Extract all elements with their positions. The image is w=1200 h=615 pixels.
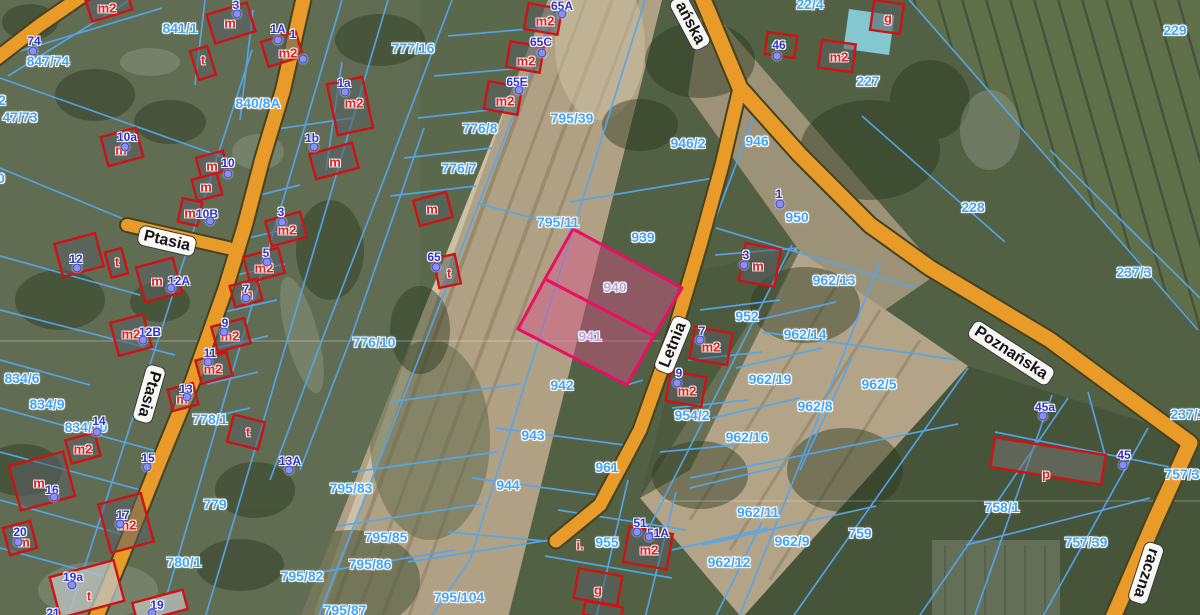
parcel-number-label: 228	[961, 199, 984, 215]
parcel-number-label: 942	[550, 377, 573, 393]
cadastral-map-canvas[interactable]: 841/1847/7447/7320840/8A777/16776/8776/7…	[0, 0, 1200, 615]
address-point-dot	[224, 170, 233, 179]
parcel-number-label: 834/6	[4, 370, 39, 386]
parcel-number-label: 2	[0, 92, 6, 108]
address-point-dot	[299, 55, 308, 64]
address-number-label: 10a	[117, 130, 137, 144]
map-labels-layer: 841/1847/7447/7320840/8A777/16776/8776/7…	[0, 0, 1200, 615]
parcel-number-label: 237/1	[1170, 406, 1200, 422]
building-type-letter: m2	[536, 14, 555, 29]
street-name-label: raczna	[1126, 540, 1166, 606]
parcel-number-label: 962/13	[813, 272, 856, 288]
parcel-number-label: 776/8	[462, 120, 497, 136]
address-point-dot	[558, 10, 567, 19]
building-type-letter: t	[447, 266, 451, 281]
parcel-number-label: 757/39	[1065, 534, 1108, 550]
building-type-letter: m	[206, 159, 218, 174]
address-number-label: 1	[290, 27, 297, 41]
address-point-dot	[139, 336, 148, 345]
parcel-number-label: 834/9	[29, 396, 64, 412]
building-type-letter: g	[884, 11, 892, 26]
building-type-letter: m	[151, 274, 163, 289]
building-type-letter: p	[1042, 467, 1050, 482]
parcel-number-label: 795/11	[537, 214, 579, 230]
parcel-number-label: 954/2	[674, 407, 709, 423]
parcel-number-label: 962/19	[749, 371, 792, 387]
building-type-letter: m	[426, 202, 438, 217]
address-point-dot	[93, 428, 102, 437]
parcel-number-label: 795/86	[349, 556, 392, 572]
address-point-dot	[310, 143, 319, 152]
address-point-dot	[73, 264, 82, 273]
address-point-dot	[278, 218, 287, 227]
parcel-number-label: 780/1	[166, 554, 201, 570]
address-point-dot	[29, 47, 38, 56]
address-point-dot	[633, 528, 642, 537]
address-point-dot	[167, 284, 176, 293]
address-point-dot	[773, 52, 782, 61]
address-number-label: 14	[92, 414, 105, 428]
parcel-number-label: 229	[1163, 22, 1186, 38]
building-type-letter: m2	[517, 54, 536, 69]
building-type-letter: m2	[345, 96, 364, 111]
address-point-dot	[515, 86, 524, 95]
parcel-number-label: 227	[856, 73, 879, 89]
parcel-number-label: 795/39	[551, 110, 594, 126]
address-point-dot	[1119, 461, 1128, 470]
parcel-number-label: 759	[848, 525, 871, 541]
building-type-letter: t	[115, 255, 119, 270]
building-type-letter: m	[329, 155, 341, 170]
parcel-number-label: 795/82	[281, 568, 324, 584]
parcel-number-label: 962/8	[797, 398, 832, 414]
street-name-label: Ptasia	[131, 363, 168, 426]
address-number-label: 46	[772, 38, 785, 52]
address-point-dot	[183, 393, 192, 402]
address-point-dot	[740, 261, 749, 270]
parcel-number-label: 795/85	[365, 529, 408, 545]
building-type-letter: m	[33, 476, 45, 491]
parcel-number-label: 0	[0, 170, 5, 186]
address-number-label: 65C	[530, 35, 552, 49]
address-point-dot	[121, 143, 130, 152]
street-name-label: Letnia	[652, 314, 694, 377]
parcel-number-label: 776/10	[353, 334, 396, 350]
parcel-number-label: 950	[785, 209, 808, 225]
parcel-number-label: 962/11	[737, 504, 779, 520]
address-point-dot	[220, 328, 229, 337]
address-number-label: 10	[221, 156, 234, 170]
parcel-number-label: 779	[203, 496, 226, 512]
address-point-dot	[673, 379, 682, 388]
address-point-dot	[143, 463, 152, 472]
building-type-letter: m	[200, 180, 212, 195]
parcel-number-label: 939	[631, 229, 654, 245]
parcel-number-label: 962/12	[708, 554, 751, 570]
street-name-label: Ptasia	[136, 224, 198, 258]
building-type-letter: m2	[830, 50, 849, 65]
parcel-number-label: 757/3	[1164, 466, 1199, 482]
address-point-dot	[233, 10, 242, 19]
address-point-dot	[206, 217, 215, 226]
address-point-dot	[204, 358, 213, 367]
address-point-dot	[148, 609, 157, 615]
address-point-dot	[274, 36, 283, 45]
parcel-number-label: 237/3	[1116, 264, 1151, 280]
building-type-letter: t	[201, 53, 205, 68]
building-type-letter: m2	[702, 340, 721, 355]
parcel-number-label: 952	[735, 308, 758, 324]
building-type-letter: t	[87, 589, 91, 604]
building-type-letter: m2	[496, 94, 515, 109]
parcel-number-label: 795/87	[324, 602, 367, 615]
building-type-letter: m2	[74, 442, 93, 457]
building-type-letter: m2	[640, 543, 659, 558]
address-point-dot	[538, 49, 547, 58]
building-type-letter: g	[594, 583, 602, 598]
highlighted-parcel-number-label: 940	[603, 279, 626, 295]
parcel-number-label: 943	[521, 427, 544, 443]
building-type-letter: m2	[279, 46, 298, 61]
parcel-number-label: 962/5	[861, 376, 896, 392]
address-point-dot	[14, 538, 23, 547]
parcel-number-label: 955	[595, 534, 618, 550]
parcel-number-label: 776/7	[441, 160, 476, 176]
street-name-label: ańska	[667, 0, 713, 53]
address-point-dot	[645, 533, 654, 542]
parcel-number-label: 47/73	[2, 109, 37, 125]
parcel-number-label: 22/4	[796, 0, 823, 12]
parcel-number-label: 841/1	[162, 20, 197, 36]
address-point-dot	[116, 520, 125, 529]
parcel-number-label: 840/8A	[235, 95, 280, 111]
parcel-number-label: 944	[496, 477, 519, 493]
address-point-dot	[68, 581, 77, 590]
parcel-number-label: 962/16	[726, 429, 769, 445]
address-point-dot	[242, 294, 251, 303]
parcel-number-label: 758/1	[984, 499, 1019, 515]
address-number-label: 1A	[270, 22, 285, 36]
building-type-letter: m2	[98, 1, 117, 16]
address-point-dot	[1039, 412, 1048, 421]
parcel-number-label: 962/14	[784, 326, 827, 342]
address-point-dot	[432, 263, 441, 272]
street-name-label: Poznańska	[965, 318, 1057, 388]
parcel-number-label: 961	[595, 459, 618, 475]
parcel-number-label: 777/16	[392, 40, 435, 56]
building-type-letter: i.	[576, 538, 583, 553]
parcel-number-label: 946	[745, 133, 768, 149]
parcel-number-label: 778/1	[192, 411, 227, 427]
building-type-letter: m	[752, 259, 764, 274]
building-type-letter: m	[184, 206, 196, 221]
address-point-dot	[696, 336, 705, 345]
address-point-dot	[263, 258, 272, 267]
parcel-number-label: 946/2	[670, 135, 705, 151]
address-point-dot	[341, 88, 350, 97]
address-point-dot	[776, 200, 785, 209]
address-point-dot	[50, 493, 59, 502]
highlighted-parcel-number-label: 941	[578, 328, 601, 344]
parcel-number-label: 795/104	[434, 589, 485, 605]
parcel-number-label: 795/83	[330, 480, 373, 496]
parcel-number-label: 962/9	[774, 533, 809, 549]
building-type-letter: t	[246, 425, 250, 440]
address-point-dot	[285, 466, 294, 475]
